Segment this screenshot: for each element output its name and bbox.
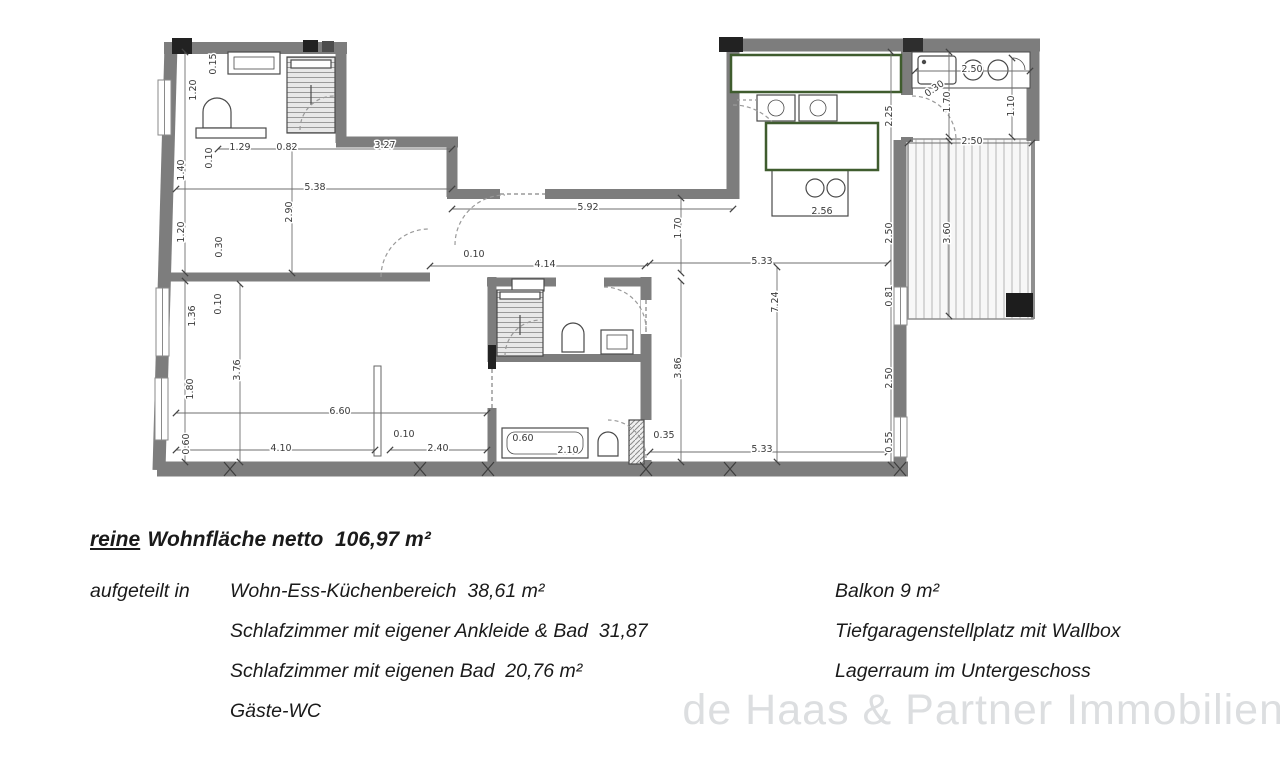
dimension-label: 1.40: [176, 159, 187, 180]
dimension-label: 1.80: [185, 378, 196, 399]
hall-door-arc: [455, 195, 505, 245]
breakdown-left-item: Wohn-Ess-Küchenbereich 38,61 m²: [230, 580, 544, 603]
marker-entry-corner: [719, 37, 743, 52]
dimension-label: 6.60: [329, 406, 350, 417]
dimension-label: 0.60: [512, 433, 533, 444]
partition-stub: [374, 366, 381, 456]
breakdown-left-item: Schlafzimmer mit eigener Ankleide & Bad …: [230, 620, 648, 643]
redaction-box-1: [731, 55, 901, 92]
dimension-label: 4.10: [270, 443, 291, 454]
dimension-label: 2.10: [557, 445, 578, 456]
shelf: [512, 279, 544, 291]
toilet: [562, 323, 584, 352]
breakdown-right-item: Lagerraum im Untergeschoss: [835, 660, 1091, 683]
window-right-1: [894, 287, 907, 325]
dimension-label: 1.70: [942, 91, 953, 112]
dimension-label: 1.29: [229, 142, 250, 153]
dimension-label: 1.20: [188, 79, 199, 100]
dimension-label: 2.56: [811, 206, 832, 217]
dimension-label: 2.50: [884, 367, 895, 388]
dimension-label: 0.81: [884, 285, 895, 306]
redaction-box-2: [766, 123, 878, 170]
dimension-label: 5.33: [751, 444, 772, 455]
marker-top-left: [172, 38, 192, 54]
dimension-label: 1.36: [187, 305, 198, 326]
toilet: [203, 98, 231, 128]
dimension-label: 3.86: [673, 357, 684, 378]
dimension-label: 1.70: [673, 217, 684, 238]
marker-kitchen-corner: [903, 38, 923, 52]
dimension-label: 0.10: [393, 429, 414, 440]
dimension-label: 2.40: [427, 443, 448, 454]
dimension-label: 3.76: [232, 359, 243, 380]
dimension-label: 5.92: [577, 202, 598, 213]
dimension-label: 5.33: [751, 256, 772, 267]
island-counter: [772, 170, 848, 216]
radiator: [629, 420, 644, 464]
net-area-value: Wohnfläche netto 106,97 m²: [148, 528, 431, 551]
marker-top-a: [303, 40, 318, 52]
dimension-label: 2.50: [961, 64, 982, 75]
net-area-prefix: reine: [90, 528, 140, 551]
breakdown-left-item: Gäste-WC: [230, 700, 321, 723]
breakdown-row-2: Schlafzimmer mit eigener Ankleide & Bad …: [0, 620, 1280, 660]
dimension-label: 4.14: [534, 259, 555, 270]
agency-watermark: de Haas & Partner Immobilien: [682, 686, 1280, 735]
balcony: [908, 139, 1033, 319]
dimension-label: 0.55: [884, 431, 895, 452]
balcony-corner-marker: [1006, 293, 1033, 317]
bathroom2: [497, 279, 646, 356]
window-left-1: [158, 80, 171, 135]
dimension-label: 1.10: [1006, 95, 1017, 116]
bedroom-door-arc: [381, 229, 429, 277]
breakdown-row-1: aufgeteilt in Wohn-Ess-Küchenbereich 38,…: [0, 580, 1280, 620]
dimension-label: 0.10: [463, 249, 484, 260]
breakdown-right-item: Balkon 9 m²: [835, 580, 939, 603]
dimension-label: 7.24: [770, 291, 781, 312]
appliance: [799, 95, 837, 121]
dimension-label: 1.20: [176, 221, 187, 242]
net-living-area-line: reineWohnfläche netto 106,97 m²: [90, 528, 431, 552]
marker-top-b: [322, 41, 334, 52]
toilet: [598, 432, 618, 456]
dimension-label: 2.90: [284, 201, 295, 222]
floor-plan: 0.151.201.401.200.100.301.290.823.275.38…: [0, 0, 1280, 500]
dimension-label: 0.10: [213, 293, 224, 314]
door-arc: [604, 287, 646, 329]
dimension-label: 0.60: [181, 433, 192, 454]
dimension-label: 0.82: [276, 142, 297, 153]
dimension-label: 3.60: [942, 222, 953, 243]
dimension-label: 2.25: [884, 105, 895, 126]
dimension-label: 0.35: [653, 430, 674, 441]
window-right-2: [894, 417, 907, 457]
dimension-label: 2.50: [961, 136, 982, 147]
window-left-3: [155, 378, 168, 440]
window-left-2: [156, 288, 169, 356]
dimension-label: 0.30: [214, 236, 225, 257]
dimension-label: 0.15: [208, 53, 219, 74]
appliance: [757, 95, 795, 121]
breakdown-label: aufgeteilt in: [90, 580, 190, 603]
dimension-label: 3.27: [374, 140, 395, 151]
dimension-label: 2.50: [884, 222, 895, 243]
dimension-label: 0.10: [204, 147, 215, 168]
breakdown-left-item: Schlafzimmer mit eigenen Bad 20,76 m²: [230, 660, 582, 683]
dimension-label: 5.38: [304, 182, 325, 193]
marker-bath-left: [488, 345, 496, 369]
vanity: [196, 128, 266, 138]
breakdown-right-item: Tiefgaragenstellplatz mit Wallbox: [835, 620, 1121, 643]
